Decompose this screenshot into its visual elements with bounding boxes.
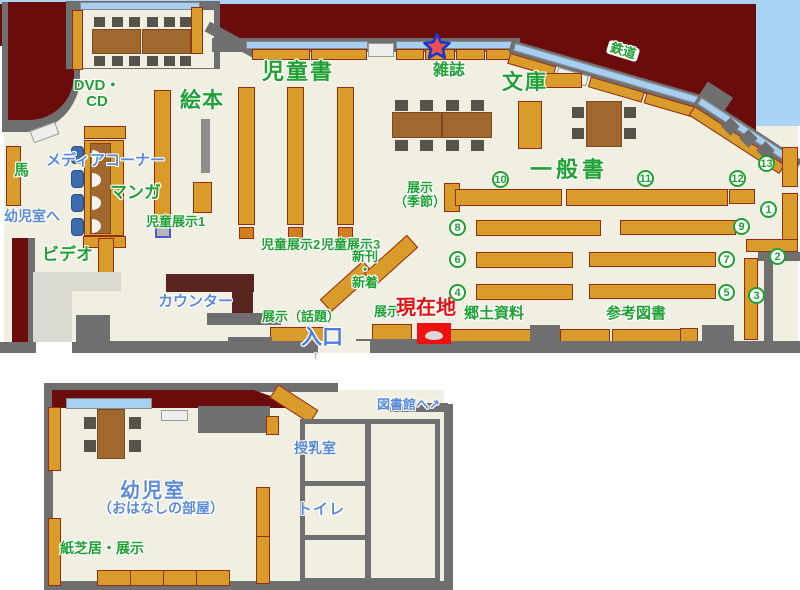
bookshelf bbox=[256, 487, 270, 537]
kamishibai-shelf bbox=[163, 570, 197, 586]
stall-divider bbox=[300, 535, 370, 540]
bookshelf bbox=[542, 73, 582, 88]
chair bbox=[129, 17, 140, 27]
chair bbox=[395, 100, 408, 111]
display-shelf bbox=[193, 182, 212, 213]
bookshelf-7 bbox=[589, 252, 716, 267]
label-toilet: トイレ bbox=[297, 502, 345, 518]
kamishibai-shelf bbox=[97, 570, 131, 586]
label-general-books: 一般書 bbox=[530, 158, 608, 182]
chair bbox=[624, 107, 636, 118]
label-children-display-2: 児童展示2 bbox=[261, 238, 320, 252]
service-counter bbox=[166, 274, 254, 292]
chair bbox=[129, 417, 141, 429]
chair bbox=[180, 56, 191, 66]
bookshelf bbox=[337, 87, 354, 225]
door-top bbox=[368, 43, 394, 57]
label-local-materials: 郷土資料 bbox=[464, 306, 524, 322]
chair bbox=[471, 140, 484, 151]
label-counter: カウンター bbox=[158, 294, 233, 310]
storage-room bbox=[366, 419, 440, 583]
reading-table bbox=[392, 112, 442, 138]
shelf-number-9: 9 bbox=[733, 218, 750, 235]
chair bbox=[129, 440, 141, 452]
label-seasonal-display: 展示 （季節） bbox=[394, 181, 446, 209]
label-reference-books: 参考図書 bbox=[606, 306, 666, 322]
chair bbox=[147, 17, 158, 27]
reading-table bbox=[442, 112, 492, 138]
label-topical-display: 展示（話題） bbox=[262, 310, 340, 324]
chair bbox=[471, 100, 484, 111]
chair bbox=[71, 218, 84, 236]
kamishibai-shelf bbox=[130, 570, 164, 586]
stall-divider bbox=[300, 481, 370, 486]
bookshelf-6 bbox=[476, 252, 573, 268]
media-desk-top bbox=[84, 126, 126, 139]
chair bbox=[572, 128, 584, 139]
bookshelf bbox=[191, 7, 203, 54]
annex-door bbox=[161, 410, 188, 421]
chair bbox=[624, 128, 636, 139]
label-children-display-1: 児童展示1 bbox=[146, 215, 205, 229]
window-top-2 bbox=[396, 41, 516, 49]
chair bbox=[147, 56, 158, 66]
bookshelf bbox=[72, 10, 83, 70]
passage-to-infant-room bbox=[36, 342, 72, 353]
shelf-number-1: 1 bbox=[760, 201, 777, 218]
chair bbox=[94, 17, 105, 27]
annex-gray-block bbox=[198, 406, 270, 433]
reading-table bbox=[586, 101, 622, 147]
label-childrens-books: 児童書 bbox=[262, 60, 334, 84]
wall-bottom bbox=[104, 341, 800, 353]
annex-wall-right bbox=[444, 404, 453, 590]
chair bbox=[420, 100, 433, 111]
lobby-area bbox=[33, 272, 121, 291]
annex-window bbox=[66, 398, 152, 409]
picture-book-divider bbox=[201, 119, 210, 173]
label-new-arrivals: 新刊 ・ 新着 bbox=[334, 250, 396, 289]
reading-table bbox=[142, 29, 191, 54]
chair bbox=[112, 56, 123, 66]
bookshelf bbox=[266, 416, 279, 435]
reading-table bbox=[92, 29, 141, 54]
window-top-left bbox=[80, 2, 200, 10]
label-media-corner: メディアコーナー bbox=[46, 153, 165, 169]
label-nursing-room: 授乳室 bbox=[294, 441, 336, 456]
wall-right-corner bbox=[764, 261, 773, 345]
bookshelf bbox=[48, 407, 61, 471]
bookshelf bbox=[98, 238, 114, 274]
bookshelf-8 bbox=[476, 220, 601, 236]
chair bbox=[94, 56, 105, 66]
shelf-number-4: 4 bbox=[449, 284, 466, 301]
shelf-number-11: 11 bbox=[637, 170, 654, 187]
chair bbox=[71, 170, 84, 188]
stack-area-left-strip bbox=[12, 238, 28, 348]
label-to-infant-room: 幼児室へ bbox=[4, 209, 60, 224]
chair bbox=[129, 56, 140, 66]
shelf-number-10: 10 bbox=[492, 171, 509, 188]
label-dvd-cd: DVD・ CD bbox=[64, 78, 130, 110]
bookshelf bbox=[256, 536, 270, 584]
current-location-star-icon bbox=[423, 32, 451, 60]
service-counter bbox=[232, 292, 253, 313]
shelf-number-2: 2 bbox=[769, 248, 786, 265]
shelf-number-12: 12 bbox=[729, 170, 746, 187]
bookshelf-11 bbox=[566, 189, 728, 206]
shelf-number-3: 3 bbox=[748, 287, 765, 304]
chair bbox=[446, 140, 459, 151]
chair bbox=[420, 140, 433, 151]
label-manga: マンガ bbox=[110, 184, 161, 202]
shelf-number-8: 8 bbox=[449, 219, 466, 236]
bookshelf bbox=[238, 87, 255, 225]
chair bbox=[84, 440, 96, 452]
to-library-text: 図書館へ bbox=[377, 397, 429, 412]
lobby-area bbox=[33, 291, 72, 343]
bookshelf-9 bbox=[620, 220, 736, 235]
label-story-room: （おはなしの部屋） bbox=[98, 501, 224, 516]
library-floor-map: 児童書 雑誌 文庫 絵本 DVD・ CD 鉄道 馬 メディアコーナー マンガ 幼… bbox=[0, 0, 800, 590]
label-paperbacks: 文庫 bbox=[502, 72, 548, 95]
window-top-1 bbox=[246, 41, 368, 49]
chair bbox=[180, 17, 191, 27]
bookshelf-12 bbox=[729, 189, 755, 204]
entrance-arrow-icon: ↑ bbox=[313, 351, 319, 363]
bookshelf bbox=[518, 101, 542, 149]
shelf-number-7: 7 bbox=[718, 251, 735, 268]
bookshelf-10 bbox=[455, 189, 562, 206]
label-to-library: 図書館へ↗ bbox=[377, 396, 440, 414]
chair bbox=[71, 194, 84, 212]
bookshelf-4 bbox=[476, 284, 573, 300]
chair bbox=[84, 417, 96, 429]
magazine-shelf bbox=[456, 49, 485, 60]
bookshelf bbox=[287, 87, 304, 225]
shelf-number-13: 13 bbox=[758, 155, 775, 172]
shelf-number-5: 5 bbox=[718, 284, 735, 301]
to-library-arrow-icon: ↗ bbox=[429, 397, 440, 412]
outside-right-corner bbox=[752, 0, 800, 126]
chair bbox=[572, 107, 584, 118]
chair bbox=[164, 56, 175, 66]
chair bbox=[164, 17, 175, 27]
shelf-endcap bbox=[239, 227, 254, 239]
you-are-here-marker-inner bbox=[425, 331, 443, 340]
chair bbox=[112, 17, 123, 27]
shelf-number-6: 6 bbox=[449, 251, 466, 268]
reading-table bbox=[97, 409, 125, 459]
label-video: ビデオ bbox=[42, 246, 93, 264]
chair bbox=[395, 140, 408, 151]
kamishibai-shelf bbox=[196, 570, 230, 586]
chair bbox=[446, 100, 459, 111]
label-magazines: 雑誌 bbox=[433, 62, 465, 79]
label-horse: 馬 bbox=[14, 163, 29, 179]
label-current-location: 現在地 bbox=[396, 298, 456, 320]
bookshelf-13 bbox=[782, 147, 798, 187]
label-entrance: 入口 bbox=[301, 327, 343, 350]
label-picture-books: 絵本 bbox=[180, 90, 224, 113]
label-kamishibai-display: 紙芝居・展示 bbox=[60, 541, 144, 556]
magazine-shelf bbox=[396, 49, 424, 60]
bookshelf-5 bbox=[589, 284, 716, 299]
